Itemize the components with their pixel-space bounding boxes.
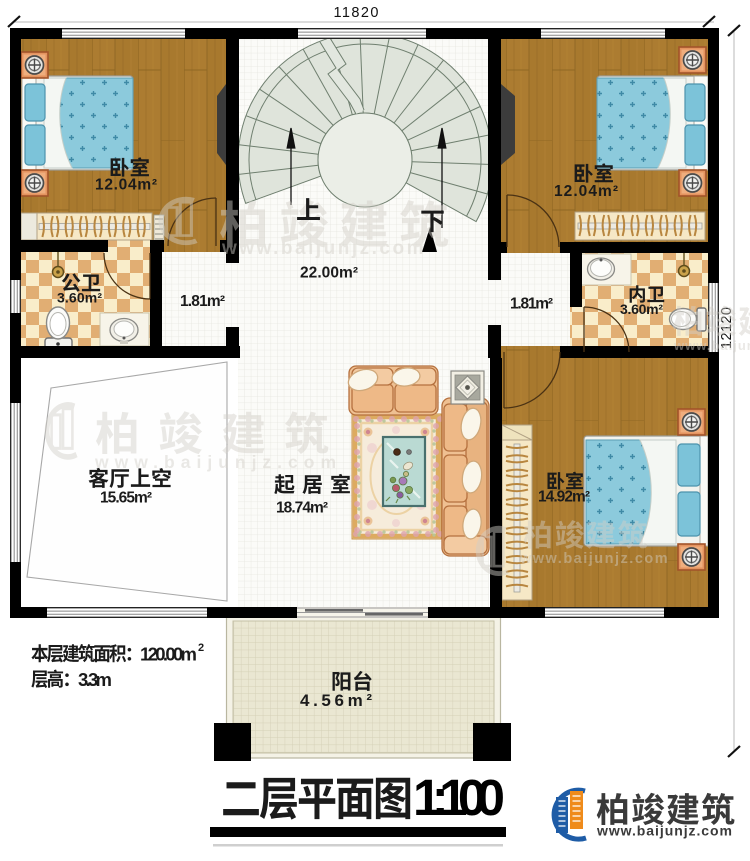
svg-text:22.00m²: 22.00m² (300, 265, 358, 282)
svg-text:3.60m²: 3.60m² (620, 301, 663, 317)
svg-text:12.04m²: 12.04m² (554, 183, 618, 200)
svg-text:www.baijunjz.com: www.baijunjz.com (519, 551, 669, 567)
svg-text:www.baijunjz.com: www.baijunjz.com (94, 452, 342, 472)
svg-text:1.81m²: 1.81m² (510, 296, 553, 313)
svg-text:2: 2 (198, 642, 204, 654)
svg-text:3.3m: 3.3m (78, 669, 112, 690)
svg-text:15.65m²: 15.65m² (100, 490, 152, 507)
svg-text:14.92m²: 14.92m² (538, 489, 590, 506)
svg-text:18.74m²: 18.74m² (276, 500, 328, 517)
svg-text:12.04m²: 12.04m² (95, 177, 157, 194)
svg-text:1:100: 1:100 (413, 769, 505, 826)
svg-text:www.baijunjz.com: www.baijunjz.com (596, 823, 733, 839)
svg-text:www.baijunjz.com: www.baijunjz.com (673, 338, 750, 353)
svg-text:120.00m: 120.00m (140, 644, 197, 665)
svg-text:1.81m²: 1.81m² (180, 293, 225, 310)
svg-text:11820: 11820 (334, 5, 379, 21)
svg-text:3.60m²: 3.60m² (57, 290, 102, 306)
svg-text:www.baijunjz.com: www.baijunjz.com (221, 238, 426, 259)
